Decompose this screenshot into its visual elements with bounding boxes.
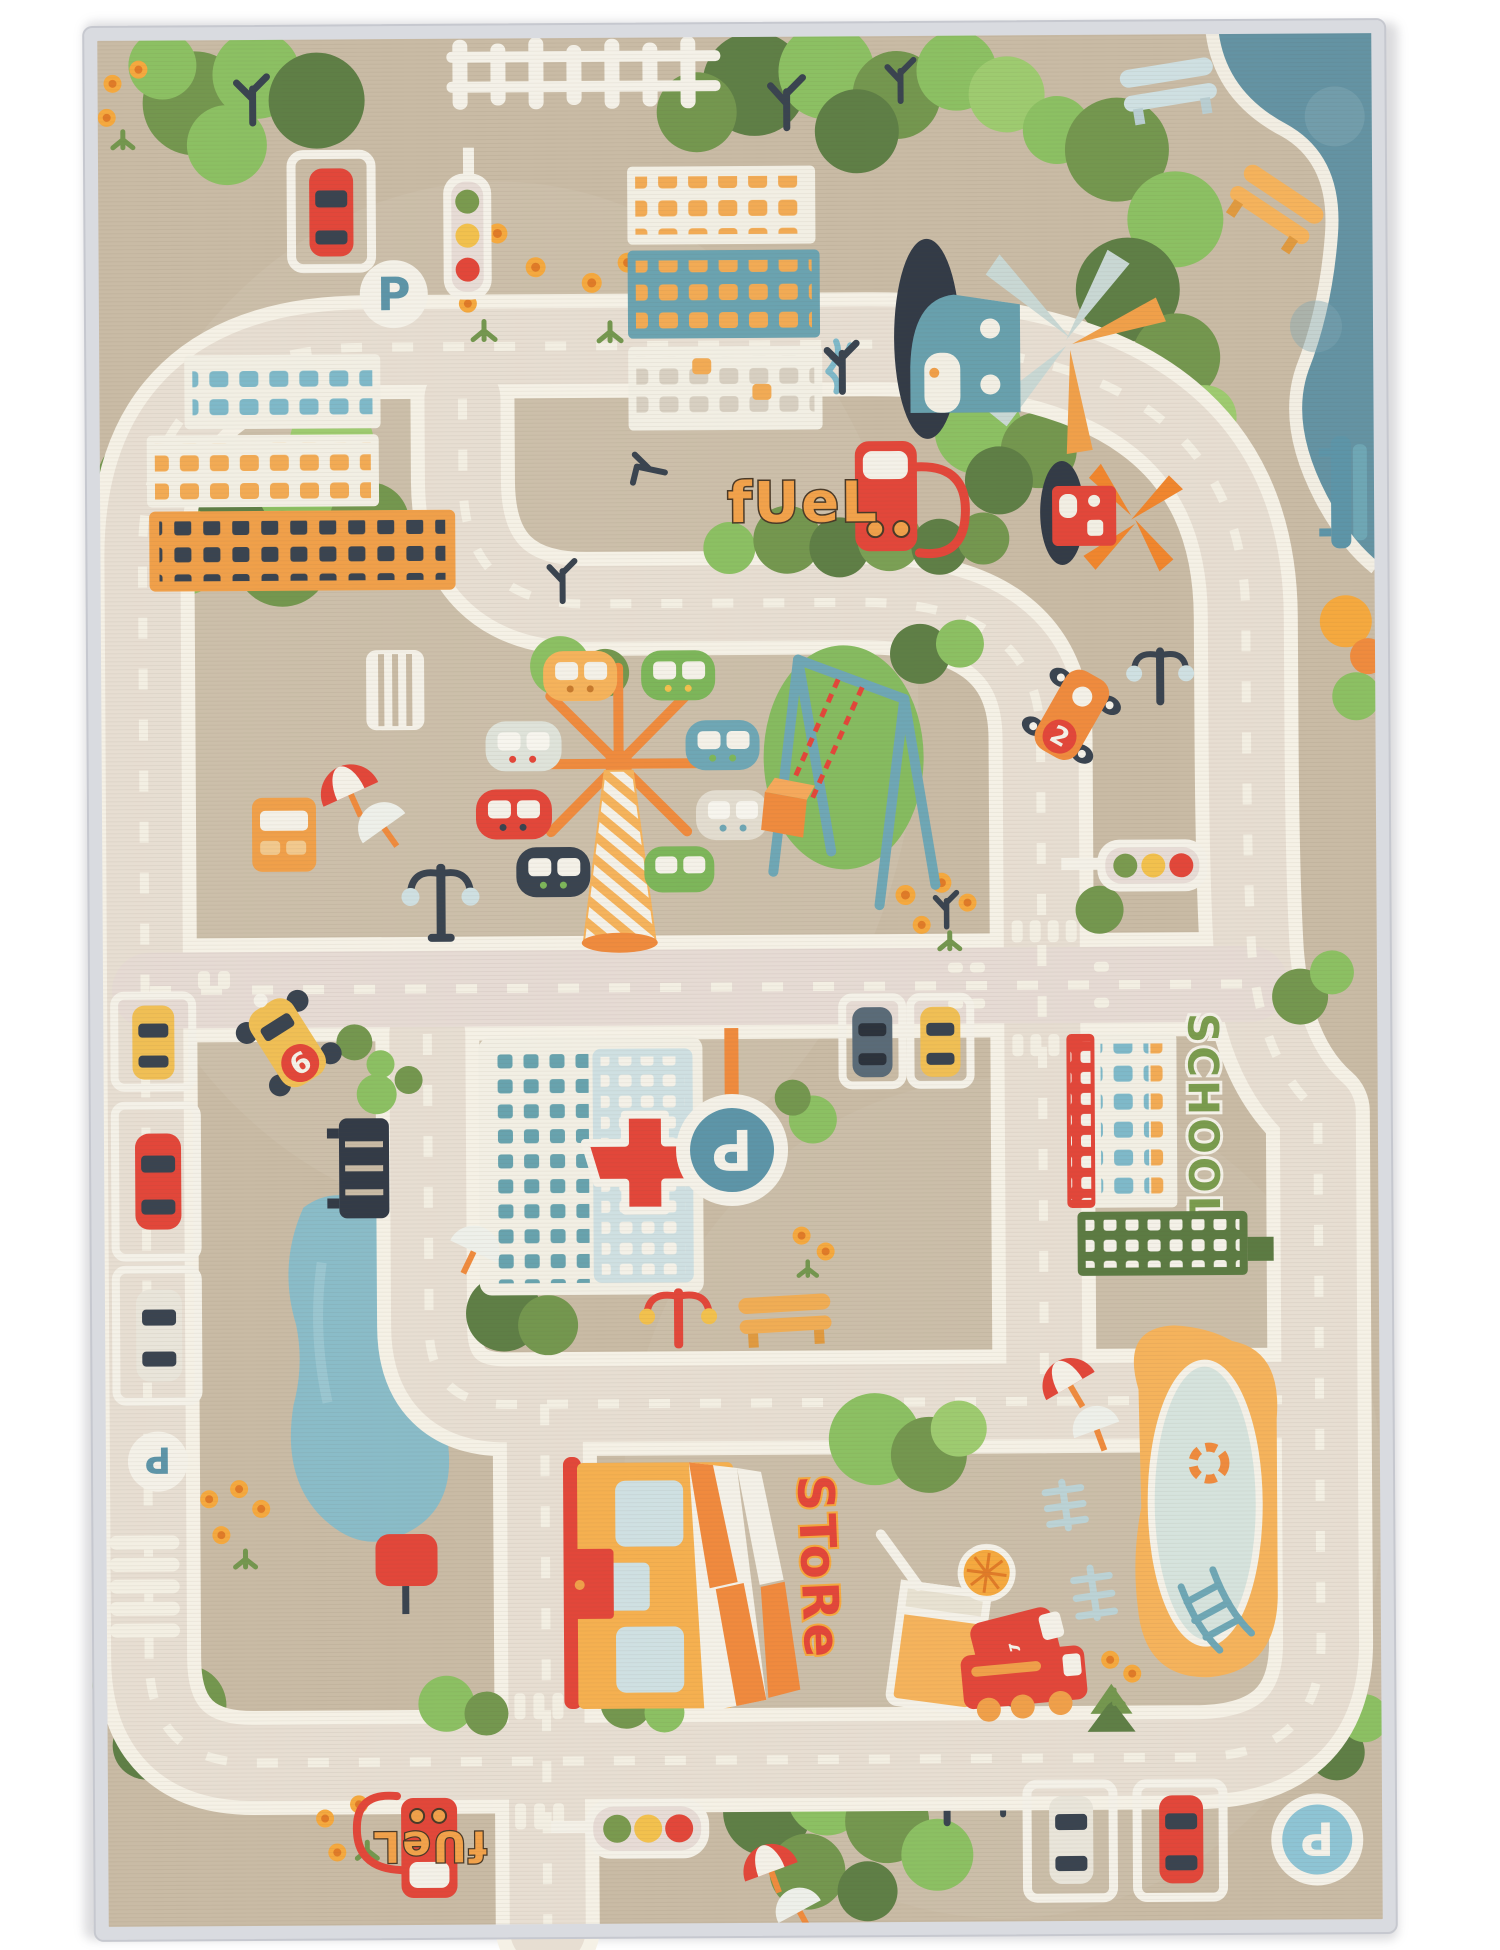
play-rug: fUeL: [74, 19, 1397, 1943]
product-photo-stage: fUeL: [0, 0, 1500, 1950]
fabric-texture: [96, 32, 1384, 1928]
play-rug-illustration: fUeL: [0, 0, 1500, 1950]
